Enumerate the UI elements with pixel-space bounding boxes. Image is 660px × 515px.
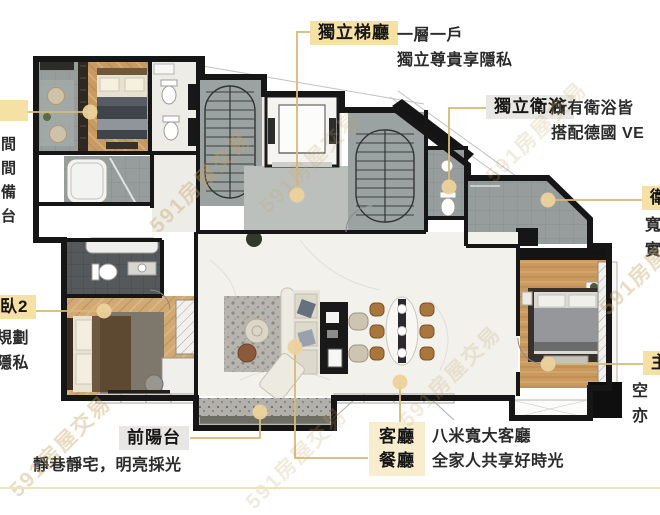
room-living-dining [196, 231, 518, 402]
bed-bedroom-2 [66, 316, 131, 392]
armchair [349, 313, 368, 330]
callout-living-label-line1: 客廳 [379, 425, 415, 449]
sink-icon [441, 160, 453, 172]
callout-lobby-label: 獨立梯廳 [310, 21, 398, 45]
floorplan-drawing [0, 0, 660, 495]
callout-right-middle-label: 衛 [642, 186, 660, 210]
media-island [320, 302, 348, 374]
nightstand [522, 292, 532, 305]
callout-right-middle-line2: 實 [645, 238, 660, 263]
callout-living-line1: 八米寬大客廳 [432, 424, 564, 449]
bottom-divider [0, 487, 660, 489]
armchair [349, 345, 368, 362]
callout-front-balcony-line1: 靜巷靜宅，明亮採光 [33, 453, 182, 478]
callout-right-bottom-line1: 空 [632, 379, 649, 404]
callout-bathrooms-desc: 所有衛浴皆 搭配德國 VE [551, 96, 644, 146]
room-master-bedroom [520, 248, 617, 388]
stairwell-right [348, 112, 424, 230]
room-wc-column [152, 62, 198, 154]
callout-lobby-line2: 獨立尊貴享隱私 [397, 48, 513, 73]
callout-right-middle-desc: 寬 實 [645, 213, 660, 263]
callout-living-desc: 八米寬大客廳 全家人共享好時光 [432, 424, 564, 474]
pouf [238, 344, 256, 362]
callout-lobby-desc: 一層一戶 獨立尊貴享隱私 [397, 23, 513, 73]
bench [544, 356, 588, 365]
room-bedroom-2 [64, 296, 196, 402]
callout-left-middle-label: 臥2 [0, 295, 36, 319]
callout-living-label-line2: 餐廳 [379, 449, 415, 473]
callout-left-top-desc: 間 間 備 台 [1, 133, 17, 229]
callout-front-balcony-label: 前陽台 [119, 426, 189, 450]
dining-set [370, 297, 434, 365]
bed-master [534, 292, 598, 354]
callout-right-bottom-line2: 亦 [632, 404, 649, 429]
callout-left-middle-desc: 規劃 隱私 [0, 326, 29, 376]
room-bathroom-top-left [36, 62, 78, 154]
callout-right-bottom-desc: 空 亦 [632, 379, 649, 429]
balcony-front [196, 398, 334, 428]
room-bathroom-2 [64, 238, 162, 296]
callout-bathrooms-line1: 所有衛浴皆 [551, 96, 644, 121]
callout-living-label: 客廳 餐廳 [369, 422, 425, 476]
callout-left-middle-line2: 隱私 [0, 351, 29, 376]
coffee-table [245, 319, 269, 343]
callout-right-bottom-label: 主 [643, 351, 660, 375]
wardrobe [176, 300, 196, 354]
plant-icon [43, 113, 51, 121]
toilet-icon [440, 192, 456, 216]
toilet-icon [161, 80, 177, 104]
callout-left-top-label-fragment [0, 100, 28, 121]
callout-right-middle-line1: 寬 [645, 213, 660, 238]
toilet-icon [163, 116, 179, 140]
callout-left-top-line3: 備 [1, 181, 17, 205]
callout-living-line2: 全家人共享好時光 [432, 449, 564, 474]
callout-lobby-line1: 一層一戶 [397, 23, 513, 48]
hallway [152, 154, 198, 232]
callout-left-top-line2: 間 [1, 157, 17, 181]
callout-left-top-line1: 間 [1, 133, 17, 157]
callout-bathrooms-line2: 搭配德國 VE [551, 121, 644, 146]
callout-left-top-line4: 台 [1, 205, 17, 229]
toilet-icon [92, 264, 117, 280]
room-bedroom-top-left [78, 62, 152, 154]
room-bathroom-tub [64, 156, 152, 206]
callout-left-middle-line1: 規劃 [0, 326, 29, 351]
callout-front-balcony-desc: 靜巷靜宅，明亮採光 [33, 453, 182, 478]
elevator [266, 96, 338, 167]
floorplan-page: { "watermark": { "text": "591房屋交易" }, "c… [0, 0, 660, 495]
bed-top-left [97, 68, 147, 149]
cabinet [516, 228, 538, 246]
